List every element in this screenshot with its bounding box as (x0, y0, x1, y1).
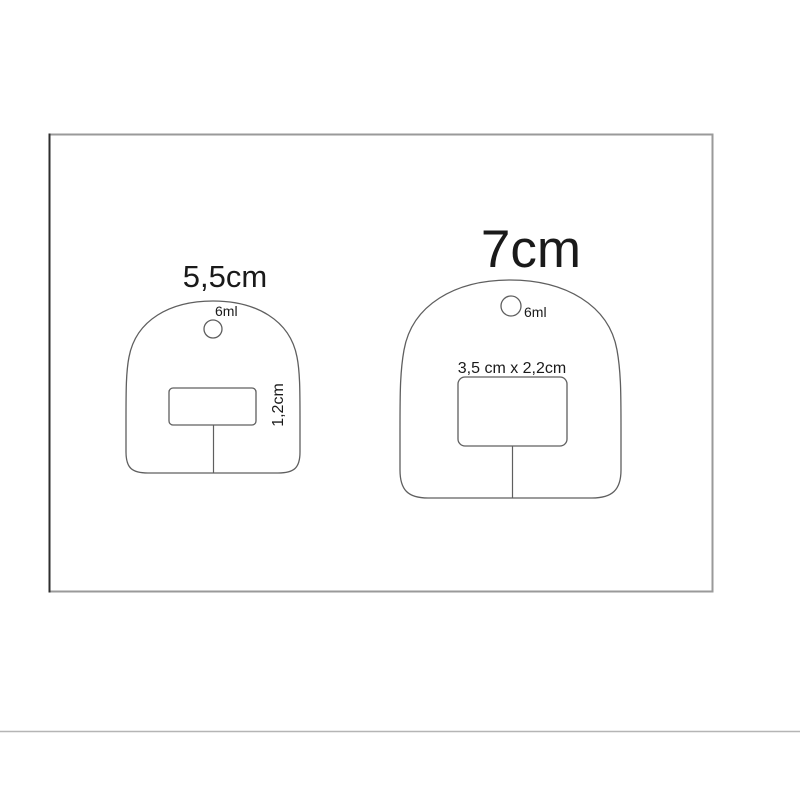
large-template-volume-label: 6ml (524, 304, 547, 320)
large-template-label-slot (458, 377, 567, 446)
large-template-slot-size-label: 3,5 cm x 2,2cm (458, 360, 566, 377)
small-template-label-slot (169, 388, 256, 425)
screenshot-canvas: 5,5cm 6ml 1,2cm 7cm 6ml 3,5 cm x 2,2cm (0, 0, 800, 800)
small-template-size-label: 5,5cm (183, 259, 267, 294)
small-template-slot-height-label: 1,2cm (270, 383, 287, 427)
large-template-hole (501, 296, 521, 316)
small-template-hole (204, 320, 222, 338)
small-template-volume-label: 6ml (215, 303, 238, 319)
dimension-diagram: 5,5cm 6ml 1,2cm 7cm 6ml 3,5 cm x 2,2cm (0, 0, 800, 800)
large-template-size-label: 7cm (481, 220, 581, 279)
